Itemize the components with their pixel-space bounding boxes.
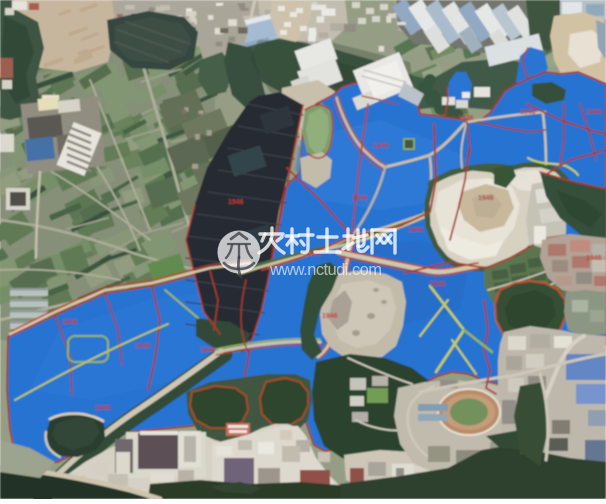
svg-text:www.nctudi.com: www.nctudi.com — [269, 261, 382, 279]
